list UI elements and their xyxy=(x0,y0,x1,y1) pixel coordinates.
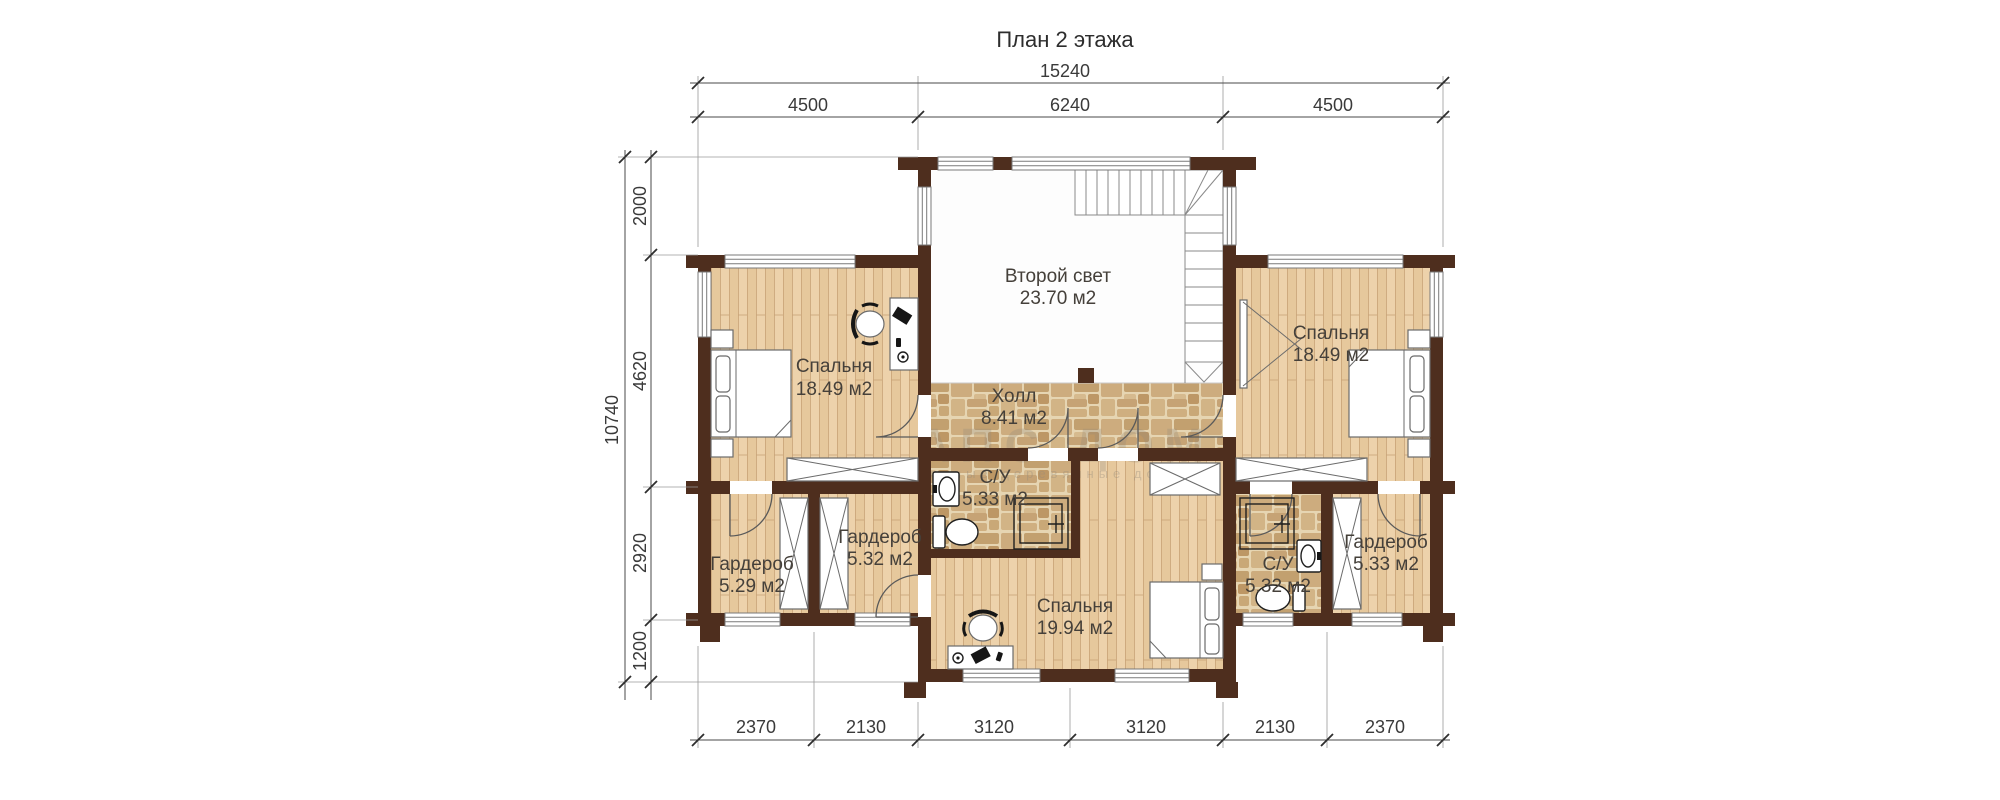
label-bedroom-center-name: Спальня xyxy=(1037,596,1113,617)
label-su-right-area: 5.32 м2 xyxy=(1245,576,1311,597)
floor-plan-page: АПС ДОМ основательные деревянные дома xyxy=(0,0,2000,800)
label-bedroom-left-name: Спальня xyxy=(796,356,872,377)
label-wardrobe533-area: 5.33 м2 xyxy=(1353,554,1419,575)
label-secondlight-name: Второй свет xyxy=(1005,266,1111,287)
dim-top-total: 15240 xyxy=(1040,61,1090,81)
wardrobe-bedroom-center xyxy=(1150,463,1220,495)
label-secondlight-area: 23.70 м2 xyxy=(1020,288,1096,309)
dim-left-total: 10740 xyxy=(602,395,622,445)
window-center-bottom-1 xyxy=(963,669,1040,682)
dim-bottom-seg-6: 2370 xyxy=(1365,717,1405,737)
window-left-top xyxy=(725,255,855,268)
wardrobe-bedroom-right xyxy=(1236,458,1367,481)
window-su-right xyxy=(1243,613,1293,626)
desk-left xyxy=(890,298,918,370)
window-secondlight-left xyxy=(918,187,931,245)
wardrobe-bedroom-left xyxy=(787,458,918,481)
sink-su-center xyxy=(933,472,959,506)
dim-left-seg-2: 4620 xyxy=(630,351,650,391)
window-center-top-2 xyxy=(1012,157,1190,170)
dim-top-seg-2: 6240 xyxy=(1050,95,1090,115)
label-su-center-name: С/У xyxy=(979,467,1011,488)
label-bedroom-right-name: Спальня xyxy=(1293,323,1369,344)
label-hall-name: Холл xyxy=(992,386,1037,407)
dim-bottom-seg-5: 2130 xyxy=(1255,717,1295,737)
label-su-right-name: С/У xyxy=(1262,554,1294,575)
dim-bottom-seg-3: 3120 xyxy=(974,717,1014,737)
dim-left-seg-4: 1200 xyxy=(630,631,650,671)
label-wardrobe529-area: 5.29 м2 xyxy=(719,576,785,597)
label-wardrobe533-name: Гардероб xyxy=(1344,532,1428,553)
window-secondlight-right xyxy=(1223,187,1236,245)
dim-bottom-seg-2: 2130 xyxy=(846,717,886,737)
dim-top-seg-1: 4500 xyxy=(788,95,828,115)
label-hall-area: 8.41 м2 xyxy=(981,408,1047,429)
dim-bottom-seg-4: 3120 xyxy=(1126,717,1166,737)
label-wardrobe532-area: 5.32 м2 xyxy=(847,549,913,570)
label-bedroom-right-area: 18.49 м2 xyxy=(1293,345,1369,366)
window-center-top-1 xyxy=(938,157,993,170)
desk-center xyxy=(948,646,1013,669)
floor-plan-drawing: АПС ДОМ основательные деревянные дома xyxy=(0,0,2000,800)
window-wardrobe532 xyxy=(855,613,910,626)
label-bedroom-left-area: 18.49 м2 xyxy=(796,379,872,400)
dim-bottom-seg-1: 2370 xyxy=(736,717,776,737)
label-wardrobe529-name: Гардероб xyxy=(710,554,794,575)
label-su-center-area: 5.33 м2 xyxy=(962,489,1028,510)
window-left-side xyxy=(698,272,711,337)
dim-left-seg-3: 2920 xyxy=(630,533,650,573)
wardrobe-unit-2 xyxy=(820,498,848,609)
window-right-side xyxy=(1430,272,1443,337)
window-right-top xyxy=(1268,255,1403,268)
dim-top-seg-3: 4500 xyxy=(1313,95,1353,115)
window-wardrobe529 xyxy=(725,613,780,626)
window-wardrobe533 xyxy=(1352,613,1402,626)
dim-left-seg-1: 2000 xyxy=(630,186,650,226)
window-center-bottom-2 xyxy=(1115,669,1189,682)
sink-su-right xyxy=(1297,540,1321,572)
drawing-title: План 2 этажа xyxy=(996,27,1134,52)
label-wardrobe532-name: Гардероб xyxy=(838,527,922,548)
toilet-su-center xyxy=(933,516,978,548)
label-bedroom-center-area: 19.94 м2 xyxy=(1037,618,1113,639)
